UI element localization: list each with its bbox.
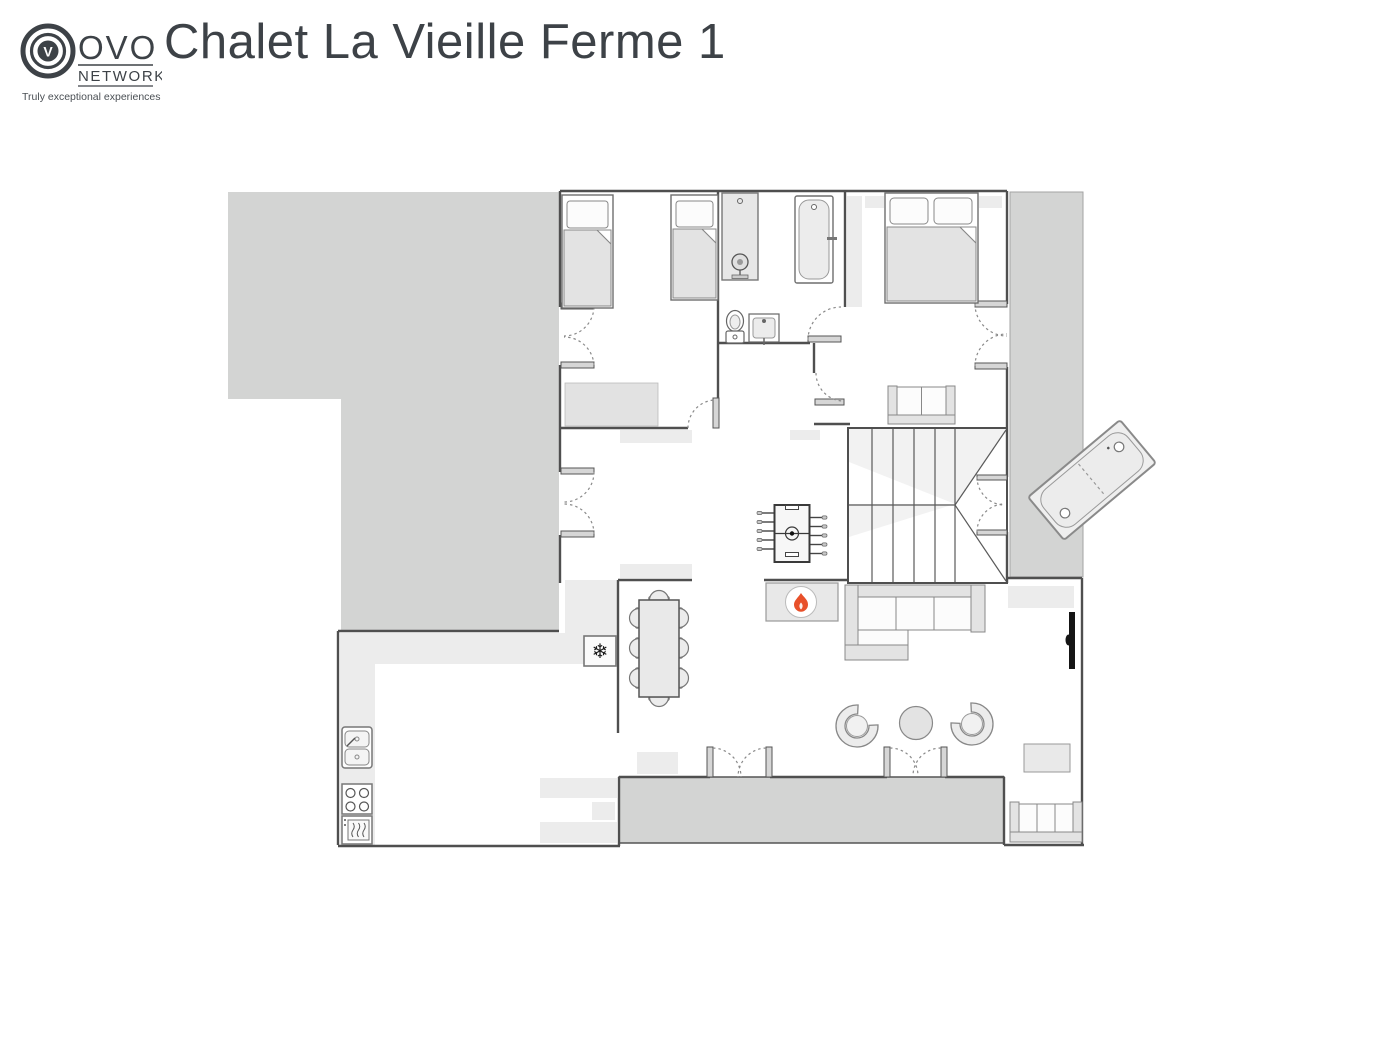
door-double-bedroom: [815, 373, 844, 405]
snowflake-icon: ❄: [592, 641, 609, 663]
hob: [342, 784, 372, 814]
bench-sofa: [1010, 802, 1082, 842]
bathtub: [795, 196, 837, 283]
kitchen-mat: [540, 822, 617, 843]
wardrobe: [565, 383, 658, 426]
upper-terrace: [228, 192, 559, 631]
french-door-kitchen-terrace: [561, 468, 594, 537]
hall-rug: [620, 430, 692, 443]
single-bed-2: [671, 195, 718, 300]
door-mat: [637, 752, 678, 774]
door-twin-bedroom: [688, 398, 719, 428]
double-sink: [342, 727, 372, 768]
armchair-left: [827, 700, 883, 756]
washbasin: [749, 314, 779, 345]
hall-rug: [790, 430, 820, 440]
side-table: [1024, 744, 1070, 772]
loveseat: [888, 386, 955, 424]
french-door-bedroom-terrace: [561, 303, 594, 368]
fireplace: [766, 583, 838, 621]
shower-head-icon: [732, 254, 748, 279]
french-door-living-terrace-1: [707, 747, 772, 777]
closet-strip: [847, 196, 862, 307]
kitchen-mat: [592, 802, 615, 820]
kitchen-counter-corner: [565, 580, 617, 633]
door-bathroom: [808, 307, 841, 342]
french-door-living-terrace-2: [884, 747, 947, 777]
bath-tap: [827, 237, 837, 240]
shower: [722, 193, 758, 280]
oven: [342, 816, 372, 844]
foosball-table: [757, 505, 827, 562]
sideboard: [1008, 586, 1074, 608]
corner-sofa: [845, 585, 985, 660]
lower-terrace: [619, 777, 1004, 843]
page: V OVO NETWORK Truly exceptional experien…: [0, 0, 1400, 1050]
floor-plan: ❄: [0, 0, 1400, 1050]
toilet: [726, 311, 744, 344]
french-door-balcony: [975, 301, 1007, 369]
round-coffee-table: [900, 707, 933, 740]
kitchen-mat: [540, 778, 617, 798]
dining-rug: [620, 564, 692, 578]
dining-set: [630, 591, 689, 707]
staircase: [848, 428, 1007, 583]
tv-icon: [1066, 612, 1076, 669]
single-bed-1: [562, 195, 613, 308]
nightstand-right: [979, 196, 1002, 208]
fridge: ❄: [584, 636, 616, 666]
kitchen-counter-top: [340, 633, 617, 664]
double-bed: [885, 193, 978, 303]
nightstand-left: [865, 196, 884, 208]
armchair-right: [946, 698, 1002, 754]
dining-table: [639, 600, 679, 697]
